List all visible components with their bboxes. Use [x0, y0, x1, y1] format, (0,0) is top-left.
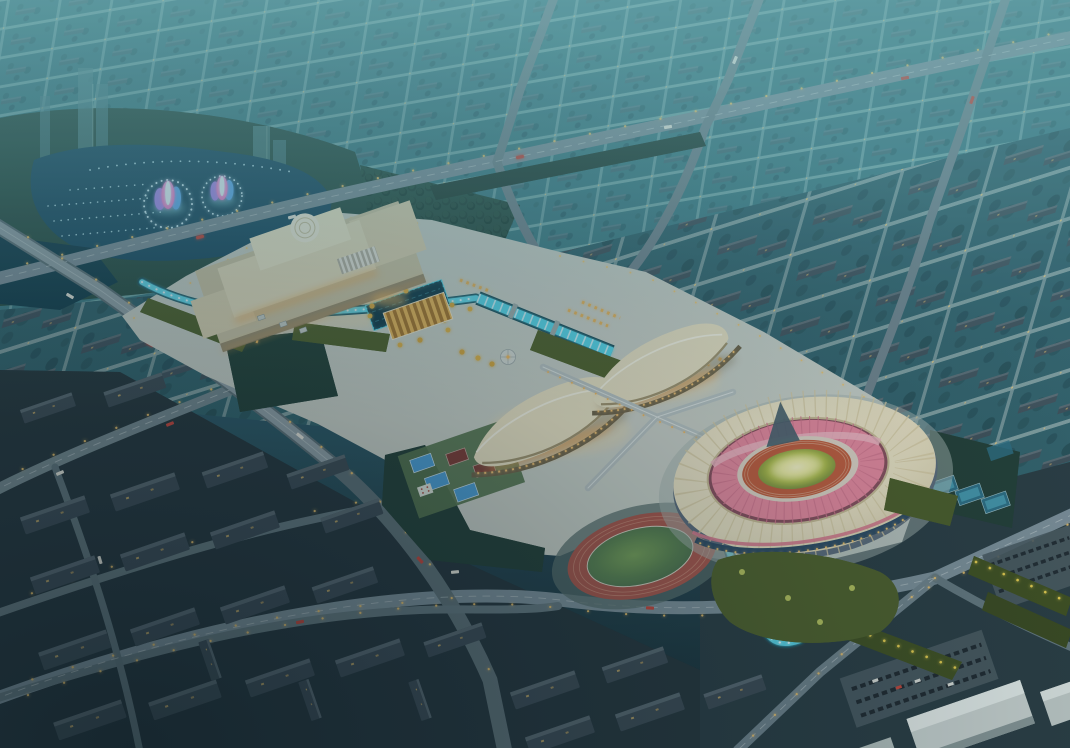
aerial-rendering [0, 0, 1070, 748]
color-cast [0, 0, 1070, 748]
rendering-canvas: Aerial dusk rendering of a sports and cu… [0, 0, 1070, 748]
